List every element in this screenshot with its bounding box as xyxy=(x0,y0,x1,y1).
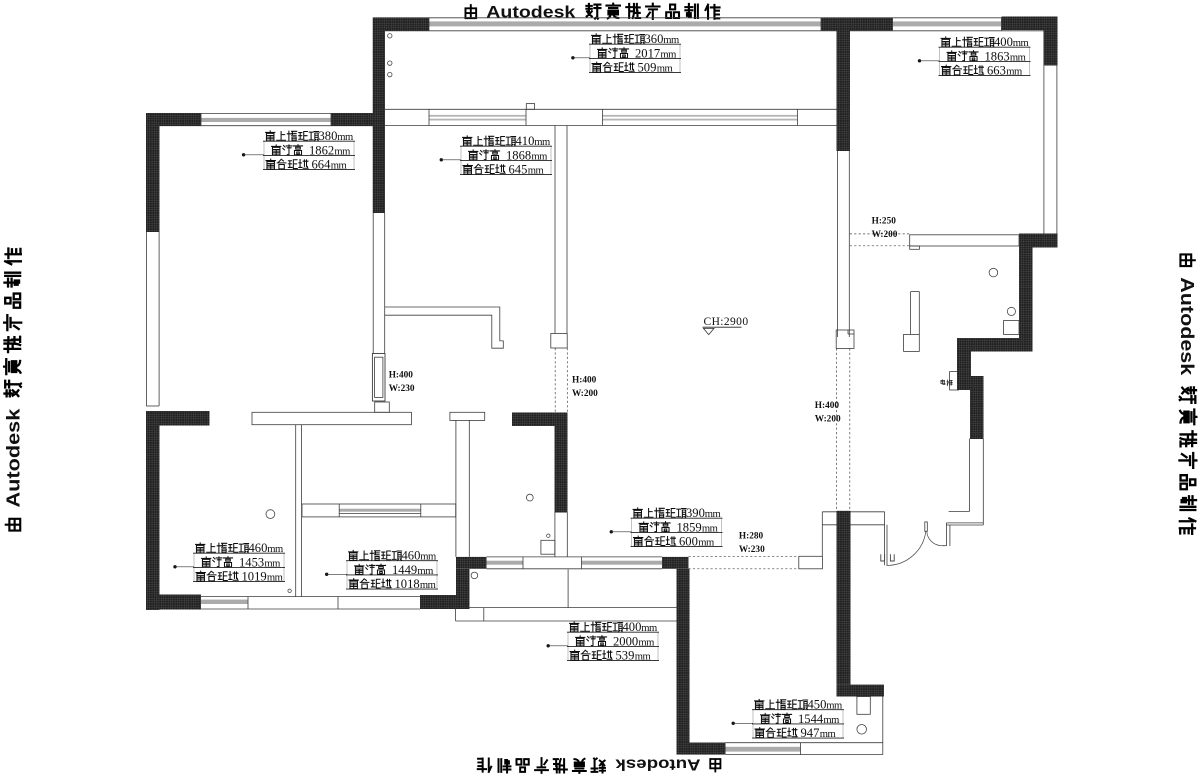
svg-text:mm: mm xyxy=(698,538,715,549)
svg-text:1544: 1544 xyxy=(798,712,824,726)
svg-text:1453: 1453 xyxy=(239,555,264,569)
svg-text:mm: mm xyxy=(420,580,437,591)
svg-text:mm: mm xyxy=(638,637,655,648)
svg-text:410: 410 xyxy=(516,134,535,148)
svg-text:W:200: W:200 xyxy=(572,389,598,399)
svg-text:H:400: H:400 xyxy=(815,401,840,411)
svg-text:mm: mm xyxy=(334,146,351,157)
svg-text:947: 947 xyxy=(801,726,820,740)
svg-text:CH:2900: CH:2900 xyxy=(704,316,749,328)
svg-text:mm: mm xyxy=(1010,52,1027,63)
svg-text:450: 450 xyxy=(808,698,827,712)
svg-text:H:400: H:400 xyxy=(389,371,414,381)
svg-text:mm: mm xyxy=(420,552,437,563)
svg-text:2000: 2000 xyxy=(613,634,638,648)
svg-text:460: 460 xyxy=(402,549,421,563)
svg-text:mm: mm xyxy=(528,166,545,177)
svg-text:H:400: H:400 xyxy=(572,376,597,386)
svg-text:1868: 1868 xyxy=(506,148,531,162)
svg-text:mm: mm xyxy=(531,151,548,162)
svg-text:400: 400 xyxy=(994,35,1013,49)
svg-text:460: 460 xyxy=(249,541,268,555)
svg-text:H:280: H:280 xyxy=(739,532,764,542)
svg-text:mm: mm xyxy=(657,64,674,75)
svg-text:mm: mm xyxy=(1013,38,1030,49)
svg-text:mm: mm xyxy=(820,729,837,740)
svg-text:mm: mm xyxy=(635,652,652,663)
svg-text:664: 664 xyxy=(312,158,332,172)
svg-text:mm: mm xyxy=(826,701,843,712)
svg-text:360: 360 xyxy=(645,32,664,46)
svg-text:mm: mm xyxy=(1006,67,1023,78)
svg-text:390: 390 xyxy=(686,506,705,520)
svg-text:mm: mm xyxy=(534,137,551,148)
svg-text:mm: mm xyxy=(267,544,284,555)
svg-text:mm: mm xyxy=(267,573,284,584)
svg-text:1863: 1863 xyxy=(985,49,1010,63)
svg-text:W:230: W:230 xyxy=(389,384,415,394)
svg-text:539: 539 xyxy=(616,649,635,663)
svg-text:mm: mm xyxy=(823,715,840,726)
svg-text:W:230: W:230 xyxy=(739,545,765,555)
svg-text:H:250: H:250 xyxy=(872,217,897,227)
svg-text:380: 380 xyxy=(319,129,338,143)
svg-text:1449: 1449 xyxy=(392,563,417,577)
svg-text:mm: mm xyxy=(705,509,722,520)
svg-text:663: 663 xyxy=(987,64,1006,78)
svg-text:W:200: W:200 xyxy=(815,415,841,425)
svg-text:1018: 1018 xyxy=(395,577,420,591)
svg-text:mm: mm xyxy=(331,161,348,172)
svg-text:509: 509 xyxy=(638,61,657,75)
svg-text:mm: mm xyxy=(660,49,677,60)
svg-text:mm: mm xyxy=(337,132,354,143)
svg-text:mm: mm xyxy=(702,523,719,534)
svg-text:mm: mm xyxy=(663,35,680,46)
svg-text:mm: mm xyxy=(417,566,434,577)
svg-text:2017: 2017 xyxy=(635,46,660,60)
svg-text:1019: 1019 xyxy=(242,570,267,584)
svg-text:600: 600 xyxy=(679,535,698,549)
svg-text:1862: 1862 xyxy=(309,143,334,157)
svg-text:W:200: W:200 xyxy=(872,230,898,240)
svg-text:mm: mm xyxy=(641,623,658,634)
svg-text:1859: 1859 xyxy=(677,520,702,534)
svg-text:645: 645 xyxy=(509,163,528,177)
svg-text:400: 400 xyxy=(623,620,642,634)
svg-text:mm: mm xyxy=(264,558,281,569)
